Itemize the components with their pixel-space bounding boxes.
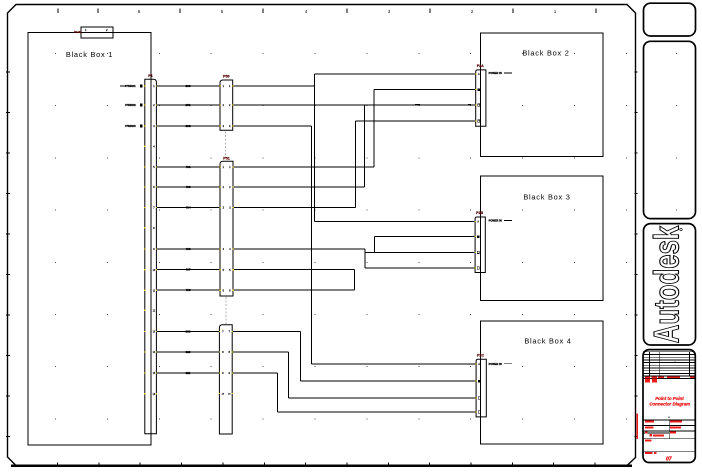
svg-text:Connector Diagram: Connector Diagram — [649, 402, 690, 407]
svg-text:POWER IN: POWER IN — [489, 71, 502, 75]
svg-text:Black Box 4: Black Box 4 — [524, 336, 571, 345]
svg-text:PWR01: PWR01 — [125, 84, 136, 88]
svg-text:Black Box 1: Black Box 1 — [66, 50, 113, 59]
svg-text:A: A — [478, 72, 480, 76]
svg-text:101: 101 — [185, 103, 190, 107]
svg-text:4: 4 — [305, 9, 308, 14]
svg-text:P51: P51 — [223, 157, 229, 161]
svg-text:102: 102 — [185, 124, 190, 128]
svg-text:408: 408 — [185, 288, 190, 292]
svg-text:406: 406 — [185, 247, 190, 251]
svg-text:1: 1 — [554, 9, 557, 14]
svg-text:P2A: P2A — [477, 64, 484, 68]
svg-text:Autodesk: Autodesk — [646, 225, 686, 343]
svg-text:A: A — [478, 362, 480, 366]
svg-text:07: 07 — [666, 457, 672, 463]
svg-text:111: 111 — [186, 371, 191, 375]
svg-text:A: A — [477, 220, 479, 224]
svg-text:PWR02: PWR02 — [125, 103, 136, 107]
svg-text:6: 6 — [138, 9, 141, 14]
svg-text:P2B: P2B — [476, 211, 483, 215]
svg-text:POWER IN: POWER IN — [489, 362, 502, 366]
svg-text:5: 5 — [221, 9, 224, 14]
svg-text:2: 2 — [471, 9, 474, 14]
svg-text:407: 407 — [185, 268, 190, 272]
svg-text:P50: P50 — [223, 74, 229, 78]
svg-text:3: 3 — [388, 9, 391, 14]
svg-text:110: 110 — [186, 350, 191, 354]
svg-text:PWR03: PWR03 — [125, 124, 136, 128]
svg-text:P1: P1 — [148, 74, 152, 78]
svg-text:Point to Point: Point to Point — [655, 396, 684, 401]
svg-text:100: 100 — [185, 84, 190, 88]
svg-text:403: 403 — [185, 185, 190, 189]
svg-text:PLUG: PLUG — [74, 30, 81, 34]
svg-text:109: 109 — [185, 330, 190, 334]
svg-text:P2C: P2C — [477, 354, 484, 358]
svg-text:401: 401 — [185, 165, 190, 169]
svg-text:Black Box 2: Black Box 2 — [522, 49, 569, 58]
svg-text:POWER IN: POWER IN — [489, 219, 502, 223]
svg-text:Black Box 3: Black Box 3 — [523, 193, 570, 202]
svg-text:404: 404 — [185, 206, 190, 210]
